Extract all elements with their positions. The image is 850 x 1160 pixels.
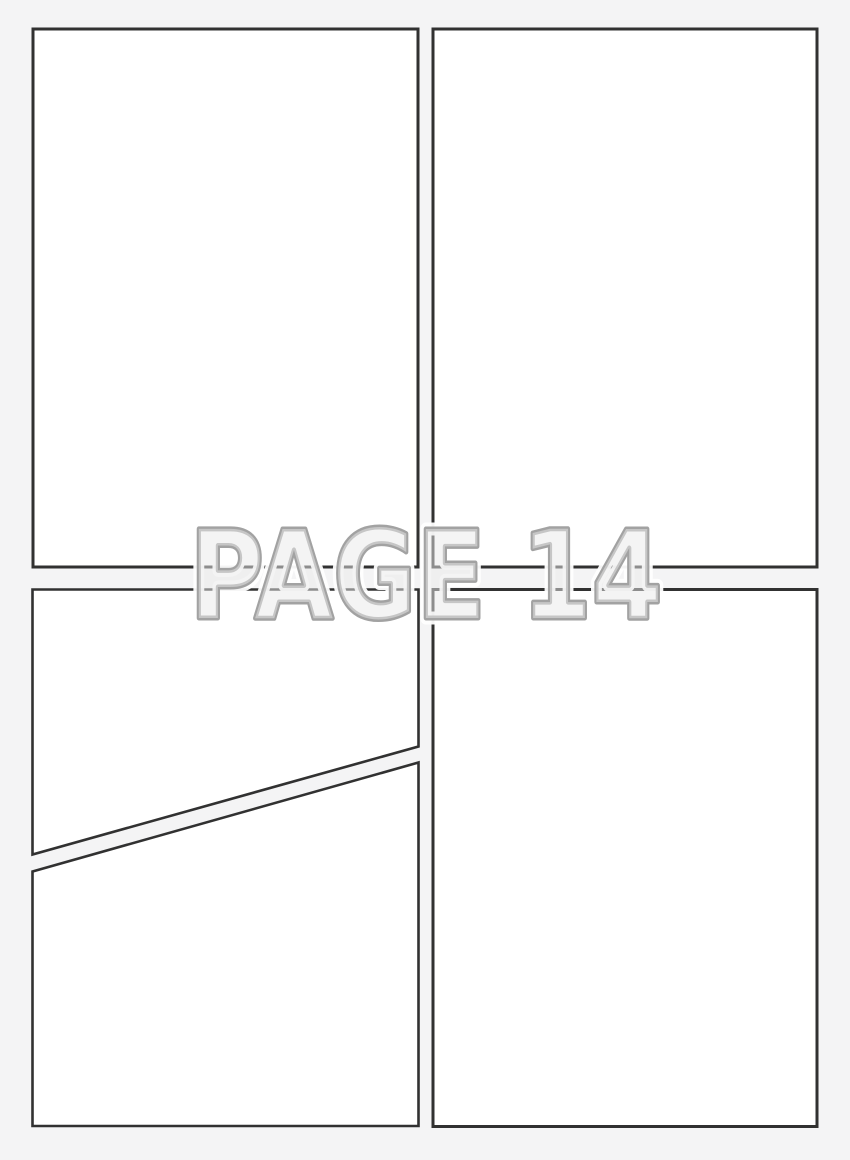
page-number-watermark: PAGE 14 PAGE 14	[190, 505, 663, 647]
panel-bottom-right	[433, 590, 817, 1127]
comic-page-template: PAGE 14 PAGE 14	[0, 0, 850, 1160]
panel-top-right	[433, 29, 817, 567]
panel-grid: PAGE 14 PAGE 14	[0, 0, 850, 1160]
page-number-watermark-text: PAGE 14	[190, 505, 663, 647]
panel-top-left	[33, 29, 418, 567]
